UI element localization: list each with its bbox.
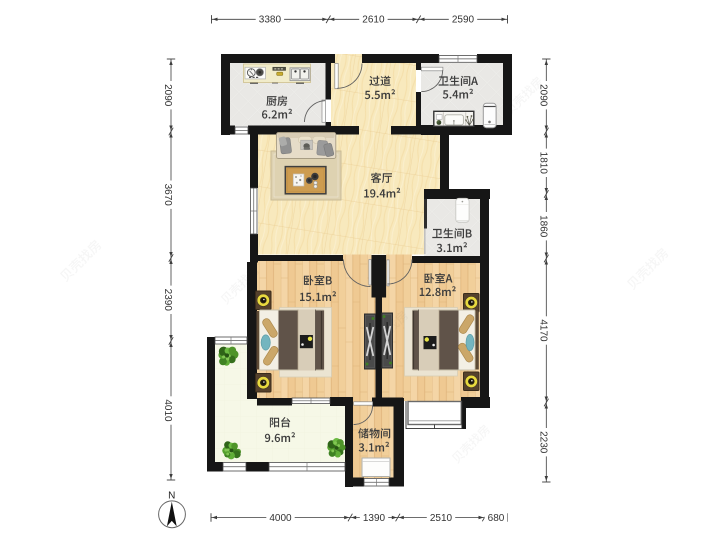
svg-text:2590: 2590 bbox=[452, 15, 475, 26]
svg-text:4000: 4000 bbox=[269, 513, 292, 524]
svg-text:2090: 2090 bbox=[537, 84, 548, 107]
svg-text:2390: 2390 bbox=[162, 289, 173, 312]
svg-text:2510: 2510 bbox=[430, 513, 453, 524]
svg-text:1860: 1860 bbox=[537, 215, 548, 238]
svg-text:3670: 3670 bbox=[162, 184, 173, 207]
svg-text:N: N bbox=[168, 491, 175, 502]
svg-text:1810: 1810 bbox=[537, 152, 548, 175]
svg-text:1390: 1390 bbox=[363, 513, 386, 524]
svg-text:680: 680 bbox=[488, 513, 505, 524]
svg-text:2230: 2230 bbox=[537, 431, 548, 454]
svg-text:2610: 2610 bbox=[362, 15, 385, 26]
svg-text:4010: 4010 bbox=[162, 399, 173, 422]
svg-text:4170: 4170 bbox=[537, 319, 548, 342]
svg-text:3380: 3380 bbox=[259, 15, 282, 26]
svg-text:2090: 2090 bbox=[162, 84, 173, 107]
